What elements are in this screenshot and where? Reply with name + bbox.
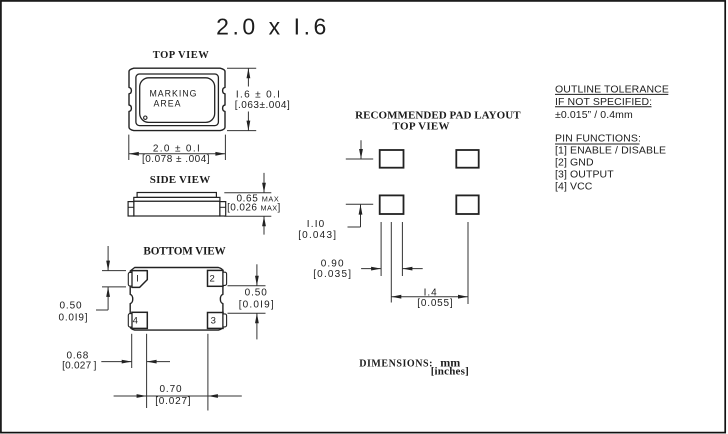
svg-text:[0.027 ]: [0.027 ] [62,361,97,372]
svg-text:TOP VIEW: TOP VIEW [153,50,209,61]
svg-text:0.0I9]: 0.0I9] [58,312,88,323]
svg-text:[3] OUTPUT: [3] OUTPUT [555,169,614,181]
svg-text:3: 3 [211,316,216,327]
svg-text:IF NOT SPECIFIED:: IF NOT SPECIFIED: [555,96,652,108]
svg-text:MARKING: MARKING [149,89,197,99]
svg-text:0.50: 0.50 [59,301,82,312]
svg-text:[0.026 MAX]: [0.026 MAX] [227,203,281,214]
svg-text:[0.078 ± .004]: [0.078 ± .004] [142,154,210,165]
svg-text:[0.035]: [0.035] [313,269,352,280]
svg-text:0.70: 0.70 [159,384,182,395]
svg-text:2.0 x I.6: 2.0 x I.6 [216,13,330,39]
svg-text:[1] ENABLE / DISABLE: [1] ENABLE / DISABLE [555,145,666,157]
svg-text:AREA: AREA [154,99,182,109]
svg-text:[0.055]: [0.055] [417,298,453,309]
svg-text:±0.015” / 0.4mm: ±0.015” / 0.4mm [555,109,633,121]
svg-text:0.90: 0.90 [321,258,345,269]
svg-text:PIN FUNCTIONS:: PIN FUNCTIONS: [555,133,641,145]
svg-text:4: 4 [133,316,138,327]
svg-text:I.4: I.4 [424,287,438,298]
svg-text:[inches]: [inches] [431,366,469,378]
svg-text:[.063±.004]: [.063±.004] [235,100,290,111]
svg-text:OUTLINE TOLERANCE: OUTLINE TOLERANCE [555,83,669,95]
svg-text:SIDE VIEW: SIDE VIEW [150,174,211,186]
svg-text:TOP VIEW: TOP VIEW [393,121,450,133]
svg-text:BOTTOM VIEW: BOTTOM VIEW [143,245,226,257]
svg-text:[0.043]: [0.043] [298,230,337,241]
svg-text:[0.027]: [0.027] [155,396,191,407]
svg-text:[4] VCC: [4] VCC [555,181,593,193]
svg-text:I: I [136,274,139,285]
svg-text:0.50: 0.50 [245,288,268,299]
svg-text:[0.0I9]: [0.0I9] [239,299,275,310]
svg-text:[2] GND: [2] GND [555,157,594,169]
svg-text:2: 2 [209,273,214,284]
svg-text:DIMENSIONS:: DIMENSIONS: [359,359,433,370]
svg-text:I.I0: I.I0 [307,219,326,230]
